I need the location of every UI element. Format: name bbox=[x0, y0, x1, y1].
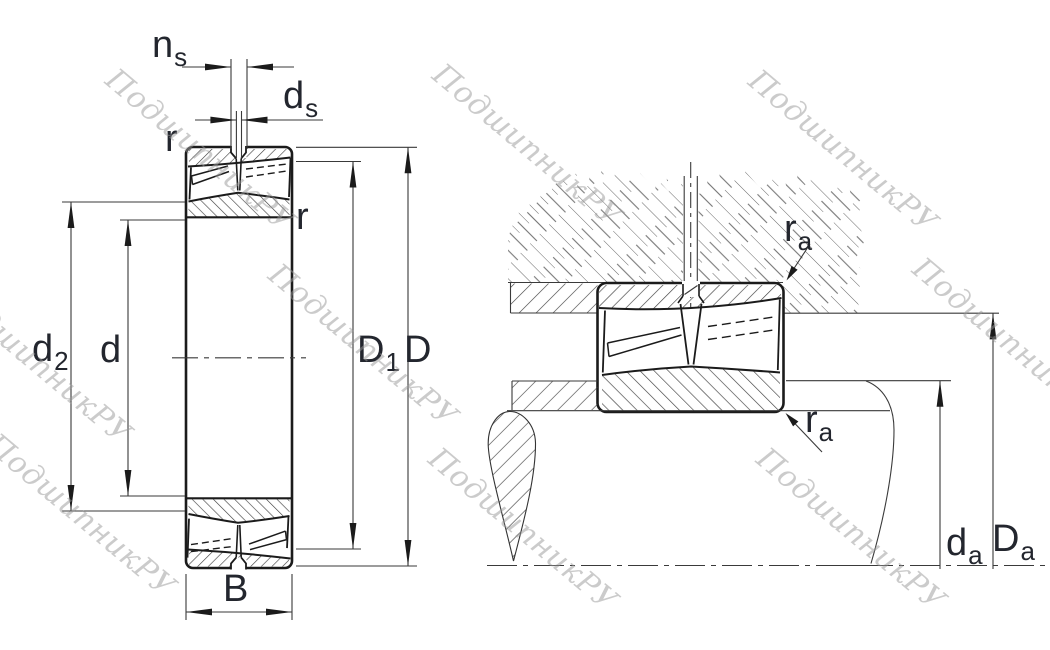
label-d: d bbox=[100, 331, 122, 369]
label-ra-housing: ra bbox=[784, 210, 812, 248]
label-Da: Da bbox=[992, 520, 1035, 558]
label-r-inner: r bbox=[296, 198, 310, 236]
mounted-bearing-section bbox=[598, 281, 784, 412]
dimension-d2 bbox=[62, 202, 185, 511]
label-ds: ds bbox=[283, 77, 318, 115]
top-inner-ring bbox=[187, 193, 292, 218]
inner-ring bbox=[602, 367, 780, 411]
label-B: B bbox=[223, 570, 249, 608]
top-lubrication-groove bbox=[231, 144, 247, 191]
dimension-ns bbox=[182, 59, 294, 149]
rollers-and-cage bbox=[603, 300, 780, 373]
label-ns: ns bbox=[152, 26, 187, 64]
shaft-shoulder-section-teardrop bbox=[488, 412, 535, 562]
housing-cover-ring bbox=[511, 283, 599, 313]
bottom-lubrication-groove bbox=[231, 525, 247, 572]
label-D1: D1 bbox=[357, 331, 400, 369]
right-view-mounting bbox=[487, 162, 1046, 569]
label-r-outer: r bbox=[165, 120, 179, 158]
label-da: da bbox=[946, 524, 983, 562]
bottom-inner-ring bbox=[187, 498, 292, 523]
label-ra-shaft: ra bbox=[805, 401, 833, 439]
technical-drawing-spherical-roller-bearing: ns ds r r d2 d D1 D B ra ra da Da Подшип… bbox=[0, 0, 1050, 650]
drawing-canvas bbox=[0, 0, 1050, 650]
shaft-shoulder-contour bbox=[866, 381, 894, 564]
shaft-spacer-ring bbox=[512, 381, 598, 410]
label-D: D bbox=[404, 331, 432, 369]
label-d2: d2 bbox=[32, 330, 69, 368]
